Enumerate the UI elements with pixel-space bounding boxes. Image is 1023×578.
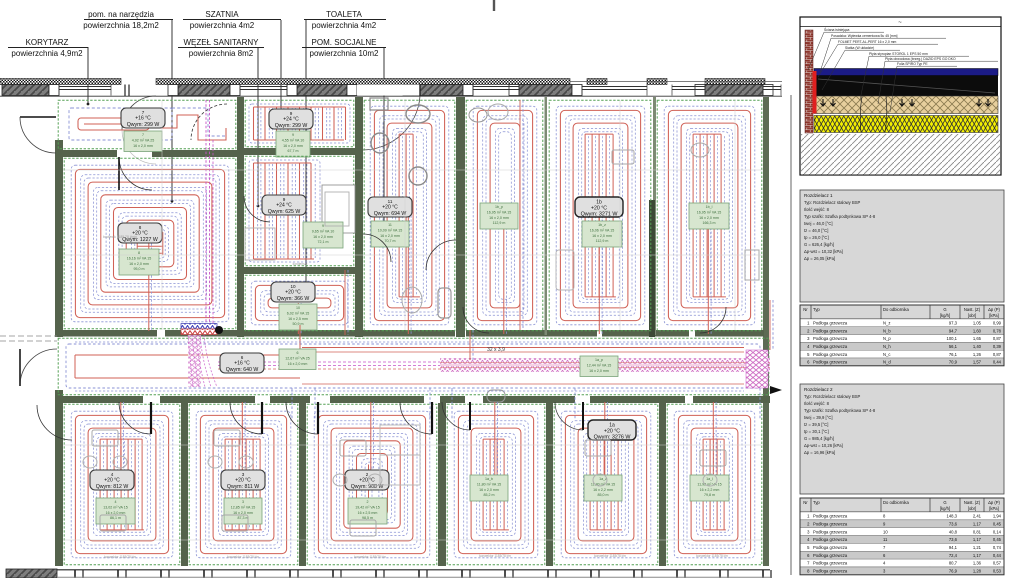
svg-text:9: 9 bbox=[290, 111, 293, 116]
svg-text:0,44: 0,44 bbox=[993, 553, 1002, 558]
svg-text:148,3: 148,3 bbox=[947, 514, 958, 519]
svg-text:16 x 2,2 mm: 16 x 2,2 mm bbox=[700, 488, 720, 492]
svg-text:Qwym: 811 W: Qwym: 811 W bbox=[227, 484, 259, 490]
svg-text:Nast. (Z): Nast. (Z) bbox=[964, 500, 981, 505]
svg-text:1,05: 1,05 bbox=[973, 321, 982, 326]
svg-text:1,28: 1,28 bbox=[973, 569, 982, 574]
svg-text:Rozdzielacz 2: Rozdzielacz 2 bbox=[804, 387, 833, 392]
svg-text:50,9 m: 50,9 m bbox=[293, 322, 304, 326]
svg-text:16 x 2,0 mm: 16 x 2,0 mm bbox=[489, 216, 509, 220]
svg-text:112,9 m: 112,9 m bbox=[596, 239, 609, 243]
svg-text:powierzchnia 4m2: powierzchnia 4m2 bbox=[312, 21, 377, 30]
svg-text:FOLMET PERT-AL-PERT 16 x 2,0 m: FOLMET PERT-AL-PERT 16 x 2,0 mm bbox=[838, 40, 897, 44]
svg-text:3: 3 bbox=[242, 500, 244, 504]
svg-text:16,06 m² VA 15: 16,06 m² VA 15 bbox=[590, 229, 615, 233]
svg-text:166,3 m: 166,3 m bbox=[703, 221, 716, 225]
svg-text:11: 11 bbox=[883, 537, 888, 542]
svg-text:16 x 2,0 mm: 16 x 2,0 mm bbox=[133, 144, 153, 148]
svg-text:1a_l: 1a_l bbox=[706, 477, 713, 481]
svg-text:80,7: 80,7 bbox=[949, 561, 958, 566]
svg-text:16 x 2,0 mm: 16 x 2,0 mm bbox=[283, 144, 303, 148]
svg-text:Δp (P): Δp (P) bbox=[988, 500, 1000, 505]
svg-text:19,42 m² VA 15: 19,42 m² VA 15 bbox=[355, 506, 380, 510]
svg-text:Ilość wejść: 8: Ilość wejść: 8 bbox=[804, 401, 830, 406]
svg-text:N_h: N_h bbox=[883, 344, 891, 349]
svg-text:Rozdzielacz 1: Rozdzielacz 1 bbox=[804, 193, 833, 198]
svg-text:16 x 2,0 mm: 16 x 2,0 mm bbox=[288, 362, 308, 366]
svg-text:32 x 3,9: 32 x 3,9 bbox=[487, 347, 505, 353]
svg-text:N_c: N_c bbox=[883, 352, 890, 357]
svg-text:6: 6 bbox=[297, 351, 299, 355]
svg-text:16 x 2,0 mm: 16 x 2,0 mm bbox=[479, 488, 499, 492]
svg-text:9: 9 bbox=[283, 197, 286, 202]
svg-text:Podłoga grzewcza: Podłoga grzewcza bbox=[813, 514, 848, 519]
svg-text:+20 °C: +20 °C bbox=[285, 290, 301, 296]
svg-text:Podłoga grzewcza: Podłoga grzewcza bbox=[813, 360, 848, 365]
svg-text:16 x 2,5 mm: 16 x 2,5 mm bbox=[288, 317, 308, 321]
svg-text:konwektor 1185/78 l/m: konwektor 1185/78 l/m bbox=[227, 555, 259, 559]
svg-text:SZATNIA: SZATNIA bbox=[205, 10, 239, 19]
svg-text:4,92 m² VA 25: 4,92 m² VA 25 bbox=[132, 139, 155, 143]
svg-text:powierzchnia 4,9m2: powierzchnia 4,9m2 bbox=[11, 49, 83, 58]
svg-text:powierzchnia 8m2: powierzchnia 8m2 bbox=[189, 49, 254, 58]
svg-text:Qwym: 299 W: Qwym: 299 W bbox=[127, 122, 160, 128]
svg-text:16 x 2,0 mm: 16 x 2,0 mm bbox=[699, 216, 719, 220]
svg-text:Qwym: 812 W: Qwym: 812 W bbox=[96, 484, 129, 490]
svg-text:1b_z: 1b_z bbox=[598, 223, 606, 227]
svg-text:76,9: 76,9 bbox=[949, 569, 958, 574]
svg-text:0,87: 0,87 bbox=[993, 336, 1002, 341]
svg-text:Ilość wejść: 8: Ilość wejść: 8 bbox=[804, 207, 830, 212]
svg-text:G = 985,4 [kg/h]: G = 985,4 [kg/h] bbox=[804, 436, 834, 441]
svg-text:Podłoga grzewcza: Podłoga grzewcza bbox=[813, 321, 848, 326]
svg-text:0,78: 0,78 bbox=[993, 328, 1002, 333]
svg-text:pom. na narzędzia: pom. na narzędzia bbox=[88, 10, 154, 19]
svg-text:~: ~ bbox=[898, 20, 902, 26]
svg-text:86,1 m: 86,1 m bbox=[110, 516, 121, 520]
svg-text:4: 4 bbox=[115, 500, 117, 504]
svg-text:N_d: N_d bbox=[883, 360, 891, 365]
svg-text:16 x 2,2 mm: 16 x 2,2 mm bbox=[593, 488, 613, 492]
svg-text:Qwym: 299 W: Qwym: 299 W bbox=[275, 123, 308, 129]
svg-text:9: 9 bbox=[322, 224, 324, 228]
svg-text:0,44: 0,44 bbox=[993, 360, 1002, 365]
svg-text:Podłoga grzewcza: Podłoga grzewcza bbox=[813, 328, 848, 333]
svg-text:[kg/h]: [kg/h] bbox=[940, 313, 950, 318]
svg-text:2: 2 bbox=[367, 500, 369, 504]
svg-text:N_p: N_p bbox=[883, 336, 891, 341]
svg-text:1,17: 1,17 bbox=[973, 522, 982, 527]
svg-text:powierzchnia 4m2: powierzchnia 4m2 bbox=[190, 21, 255, 30]
svg-text:11: 11 bbox=[388, 223, 392, 227]
svg-text:[obr]: [obr] bbox=[968, 313, 976, 318]
svg-text:16 x 2,0 mm: 16 x 2,0 mm bbox=[313, 235, 333, 239]
svg-text:73,6: 73,6 bbox=[949, 537, 958, 542]
svg-text:konwektor 1185/78 l/m: konwektor 1185/78 l/m bbox=[696, 554, 728, 558]
svg-text:Podłoga grzewcza: Podłoga grzewcza bbox=[813, 561, 848, 566]
svg-text:+24 °C: +24 °C bbox=[283, 117, 299, 123]
svg-text:Podłoga grzewcza: Podłoga grzewcza bbox=[813, 529, 848, 534]
svg-text:13,02 m² VA 15: 13,02 m² VA 15 bbox=[103, 506, 128, 510]
svg-text:N_b: N_b bbox=[883, 328, 891, 333]
svg-text:konwektor 1185/78 l/m: konwektor 1185/78 l/m bbox=[594, 554, 626, 558]
svg-text:powierzchnia 18,2m2: powierzchnia 18,2m2 bbox=[83, 21, 159, 30]
svg-text:100,1: 100,1 bbox=[947, 336, 958, 341]
svg-text:67,7 m: 67,7 m bbox=[288, 149, 299, 153]
svg-text:[kPa]: [kPa] bbox=[989, 506, 999, 511]
svg-text:Podłoga grzewcza: Podłoga grzewcza bbox=[813, 344, 848, 349]
svg-text:Podłoga grzewcza: Podłoga grzewcza bbox=[813, 537, 848, 542]
svg-text:konwektor 1185/78 l/m: konwektor 1185/78 l/m bbox=[354, 555, 386, 559]
svg-text:8: 8 bbox=[139, 225, 142, 230]
svg-text:40,8: 40,8 bbox=[949, 529, 958, 534]
svg-text:+24 °C: +24 °C bbox=[276, 203, 292, 209]
svg-text:10: 10 bbox=[290, 284, 296, 289]
svg-text:1,36: 1,36 bbox=[973, 561, 982, 566]
svg-text:12,44 m² VA 15: 12,44 m² VA 15 bbox=[587, 364, 612, 368]
svg-text:94,1: 94,1 bbox=[949, 545, 958, 550]
svg-text:16,95 m² VA 15: 16,95 m² VA 15 bbox=[487, 211, 512, 215]
svg-text:1a_z: 1a_z bbox=[599, 477, 607, 481]
svg-text:powierzchnia 10m2: powierzchnia 10m2 bbox=[310, 49, 379, 58]
svg-text:[kPa]: [kPa] bbox=[989, 313, 999, 318]
svg-text:87,3 m: 87,3 m bbox=[238, 516, 249, 520]
svg-text:1,94: 1,94 bbox=[993, 514, 1002, 519]
svg-text:95,0 m: 95,0 m bbox=[134, 267, 145, 271]
svg-text:Typ: Rozdzielacz stalowy BSP: Typ: Rozdzielacz stalowy BSP bbox=[804, 200, 861, 205]
svg-text:kondensat: kondensat bbox=[293, 262, 308, 266]
svg-text:twej = 39,9 [°C]: twej = 39,9 [°C] bbox=[804, 415, 833, 420]
svg-text:73,6: 73,6 bbox=[949, 522, 958, 527]
svg-text:+20 °C: +20 °C bbox=[359, 478, 375, 484]
svg-text:16 x 2,0 mm: 16 x 2,0 mm bbox=[380, 234, 400, 238]
svg-text:Podłoga grzewcza: Podłoga grzewcza bbox=[813, 336, 848, 341]
svg-text:94,7: 94,7 bbox=[949, 328, 958, 333]
svg-text:0,45: 0,45 bbox=[993, 522, 1002, 527]
svg-text:Płyta obwodowa (brzeg.) DAZID: Płyta obwodowa (brzeg.) DAZID EPS GO DKO bbox=[885, 57, 956, 61]
svg-text:Folia SPIRO Typ PE: Folia SPIRO Typ PE bbox=[897, 62, 928, 66]
svg-text:Podłoga grzewcza: Podłoga grzewcza bbox=[813, 569, 848, 574]
svg-text:85,2 m: 85,2 m bbox=[484, 493, 495, 497]
svg-text:16 x 2,0 mm: 16 x 2,0 mm bbox=[592, 234, 612, 238]
svg-text:Typ szafki: Szafka podtynkowa: Typ szafki: Szafka podtynkowa SP 4-8 bbox=[804, 408, 876, 413]
svg-text:1,21: 1,21 bbox=[973, 545, 982, 550]
svg-text:Nr: Nr bbox=[803, 307, 808, 312]
svg-text:1b_p: 1b_p bbox=[495, 205, 503, 209]
svg-text:Δp = 26,05 [kPa]: Δp = 26,05 [kPa] bbox=[804, 256, 835, 261]
svg-text:4: 4 bbox=[111, 472, 114, 477]
svg-text:G: G bbox=[943, 500, 946, 505]
svg-text:1,65: 1,65 bbox=[973, 336, 982, 341]
svg-text:konwektor 1185/78 l/m: konwektor 1185/78 l/m bbox=[104, 555, 136, 559]
svg-text:Qwym: 625 W: Qwym: 625 W bbox=[268, 209, 301, 215]
svg-text:72,4: 72,4 bbox=[949, 553, 958, 558]
svg-text:Podłoga grzewcza: Podłoga grzewcza bbox=[813, 545, 848, 550]
svg-text:4,55 m² VA 10: 4,55 m² VA 10 bbox=[282, 139, 305, 143]
svg-text:Δp = 16,96 [kPa]: Δp = 16,96 [kPa] bbox=[804, 450, 835, 455]
svg-text:1,17: 1,17 bbox=[973, 553, 982, 558]
svg-text:85,0 m: 85,0 m bbox=[598, 493, 609, 497]
svg-text:Qwym: 694 W: Qwym: 694 W bbox=[374, 211, 407, 217]
svg-text:79,8 m: 79,8 m bbox=[704, 493, 715, 497]
svg-text:Typ: Typ bbox=[813, 500, 820, 505]
svg-text:Nr: Nr bbox=[803, 500, 808, 505]
svg-text:Podłoga grzewcza: Podłoga grzewcza bbox=[813, 352, 848, 357]
svg-text:Δp-wst = 10,32 [kPa]: Δp-wst = 10,32 [kPa] bbox=[804, 249, 843, 254]
svg-text:70,9: 70,9 bbox=[949, 360, 958, 365]
svg-text:16 x 2,0 mm: 16 x 2,0 mm bbox=[589, 369, 609, 373]
svg-text:1,40: 1,40 bbox=[973, 344, 982, 349]
svg-text:56,1: 56,1 bbox=[949, 344, 958, 349]
svg-text:0,99: 0,99 bbox=[993, 321, 1002, 326]
svg-text:16 x 2,0 mm: 16 x 2,0 mm bbox=[129, 262, 149, 266]
svg-text:0,87: 0,87 bbox=[993, 352, 1002, 357]
svg-text:6,02 m² VA 15: 6,02 m² VA 15 bbox=[287, 312, 310, 316]
svg-text:1,57: 1,57 bbox=[973, 360, 982, 365]
svg-text:POM. SOCJALNE: POM. SOCJALNE bbox=[312, 38, 377, 47]
svg-text:+20 °C: +20 °C bbox=[382, 205, 398, 211]
svg-text:1,17: 1,17 bbox=[973, 537, 982, 542]
svg-text:0,74: 0,74 bbox=[993, 545, 1002, 550]
svg-text:10: 10 bbox=[883, 529, 888, 534]
svg-text:1b_l: 1b_l bbox=[706, 205, 713, 209]
svg-text:Podłoga grzewcza: Podłoga grzewcza bbox=[813, 522, 848, 527]
svg-text:Δp (P): Δp (P) bbox=[988, 307, 1000, 312]
svg-text:2,41: 2,41 bbox=[973, 514, 982, 519]
svg-text:+20 °C: +20 °C bbox=[104, 478, 120, 484]
svg-text:Qwym: 640 W: Qwym: 640 W bbox=[226, 367, 259, 373]
svg-text:Typ szafki: Szafka podtynkowa: Typ szafki: Szafka podtynkowa SP 4-8 bbox=[804, 214, 876, 219]
svg-text:0,45: 0,45 bbox=[993, 537, 1002, 542]
svg-text:16 x 2,0 mm: 16 x 2,0 mm bbox=[233, 511, 253, 515]
svg-text:16 x 2,5 mm: 16 x 2,5 mm bbox=[358, 511, 378, 515]
svg-text:[kg/h]: [kg/h] bbox=[940, 506, 950, 511]
svg-text:Podłoga grzewcza: Podłoga grzewcza bbox=[813, 553, 848, 558]
svg-text:12,67 m² VA 25: 12,67 m² VA 25 bbox=[285, 357, 310, 361]
svg-text:G: G bbox=[943, 307, 946, 312]
svg-text:10,09 m² VA 15: 10,09 m² VA 15 bbox=[378, 229, 403, 233]
svg-text:9,65 m² VA 10: 9,65 m² VA 10 bbox=[312, 230, 335, 234]
svg-text:budynek 1185,78 l/min: budynek 1185,78 l/min bbox=[103, 235, 137, 239]
svg-text:Siatka (W układzie): Siatka (W układzie) bbox=[845, 46, 874, 50]
svg-text:Płyta styropian STOROL 1 EPS 5: Płyta styropian STOROL 1 EPS 50 mm bbox=[869, 52, 928, 56]
svg-text:Posadzka: Wylewka cementowa 5u: Posadzka: Wylewka cementowa 5u 45 [mm] bbox=[831, 34, 898, 38]
svg-text:12,85 m² VA 15: 12,85 m² VA 15 bbox=[231, 506, 256, 510]
svg-text:70,7 m: 70,7 m bbox=[385, 239, 396, 243]
svg-text:0,39: 0,39 bbox=[993, 344, 1002, 349]
svg-text:0,57: 0,57 bbox=[993, 561, 1002, 566]
svg-text:WĘZEŁ SANITARNY: WĘZEŁ SANITARNY bbox=[184, 38, 260, 47]
svg-text:tz = 39,5 [°C]: tz = 39,5 [°C] bbox=[804, 422, 828, 427]
svg-text:8: 8 bbox=[138, 251, 140, 255]
svg-text:Do odbiornika: Do odbiornika bbox=[883, 500, 910, 505]
svg-text:6: 6 bbox=[241, 355, 244, 360]
svg-text:7: 7 bbox=[142, 110, 145, 115]
svg-text:tp = 30,1 [°C]: tp = 30,1 [°C] bbox=[804, 429, 829, 434]
svg-text:+20 °C: +20 °C bbox=[235, 478, 251, 484]
svg-text:Nast. (Z): Nast. (Z) bbox=[964, 307, 981, 312]
svg-text:0,81: 0,81 bbox=[973, 529, 982, 534]
svg-text:3: 3 bbox=[242, 472, 245, 477]
svg-text:N_z: N_z bbox=[883, 321, 890, 326]
svg-text:16,95 m² VA 15: 16,95 m² VA 15 bbox=[697, 211, 722, 215]
svg-text:Δp-wst = 10,26 [kPa]: Δp-wst = 10,26 [kPa] bbox=[804, 443, 843, 448]
svg-text:7: 7 bbox=[142, 133, 144, 137]
svg-text:Qwym: 3271 W: Qwym: 3271 W bbox=[581, 212, 619, 218]
svg-text:1,60: 1,60 bbox=[973, 328, 982, 333]
svg-text:[obr]: [obr] bbox=[968, 506, 976, 511]
svg-text:tz = 46,0 [°C]: tz = 46,0 [°C] bbox=[804, 228, 828, 233]
svg-text:0,14: 0,14 bbox=[993, 529, 1002, 534]
svg-text:0,53: 0,53 bbox=[993, 569, 1002, 574]
svg-text:Typ: Rozdzielacz stalowy BSP: Typ: Rozdzielacz stalowy BSP bbox=[804, 394, 861, 399]
svg-text:+16 °C: +16 °C bbox=[135, 116, 151, 122]
svg-text:72,1 m: 72,1 m bbox=[318, 240, 329, 244]
svg-text:G = 626,4 [kg/h]: G = 626,4 [kg/h] bbox=[804, 242, 834, 247]
svg-text:tp = 26,0 [°C]: tp = 26,0 [°C] bbox=[804, 235, 829, 240]
svg-text:TOALETA: TOALETA bbox=[326, 10, 362, 19]
svg-text:konwektor 1185/78 l/m: konwektor 1185/78 l/m bbox=[479, 554, 511, 558]
svg-text:11,80 m² VA 15: 11,80 m² VA 15 bbox=[477, 483, 501, 487]
svg-text:11: 11 bbox=[388, 199, 393, 204]
svg-text:2: 2 bbox=[366, 472, 369, 477]
svg-text:KORYTARZ: KORYTARZ bbox=[26, 38, 69, 47]
svg-text:Qwym: 366 W: Qwym: 366 W bbox=[277, 296, 310, 302]
svg-text:10: 10 bbox=[296, 306, 300, 310]
svg-text:1a_p: 1a_p bbox=[595, 358, 603, 362]
svg-text:97,3: 97,3 bbox=[949, 321, 958, 326]
svg-text:1,26: 1,26 bbox=[973, 352, 982, 357]
svg-text:9: 9 bbox=[292, 133, 294, 137]
svg-text:twej = 46,0 [°C]: twej = 46,0 [°C] bbox=[804, 221, 833, 226]
svg-text:Do odbiornika: Do odbiornika bbox=[883, 307, 910, 312]
svg-text:76,1: 76,1 bbox=[949, 352, 958, 357]
svg-text:16,16 m² VA 15: 16,16 m² VA 15 bbox=[127, 257, 152, 261]
svg-text:1a_b: 1a_b bbox=[485, 477, 493, 481]
svg-text:+16 °C: +16 °C bbox=[234, 361, 250, 367]
svg-text:16 x 2,0 mm: 16 x 2,0 mm bbox=[106, 511, 126, 515]
svg-text:Typ: Typ bbox=[813, 307, 820, 312]
svg-text:Ściana istniejąca: Ściana istniejąca bbox=[824, 27, 850, 32]
svg-text:112,9 m: 112,9 m bbox=[493, 221, 506, 225]
